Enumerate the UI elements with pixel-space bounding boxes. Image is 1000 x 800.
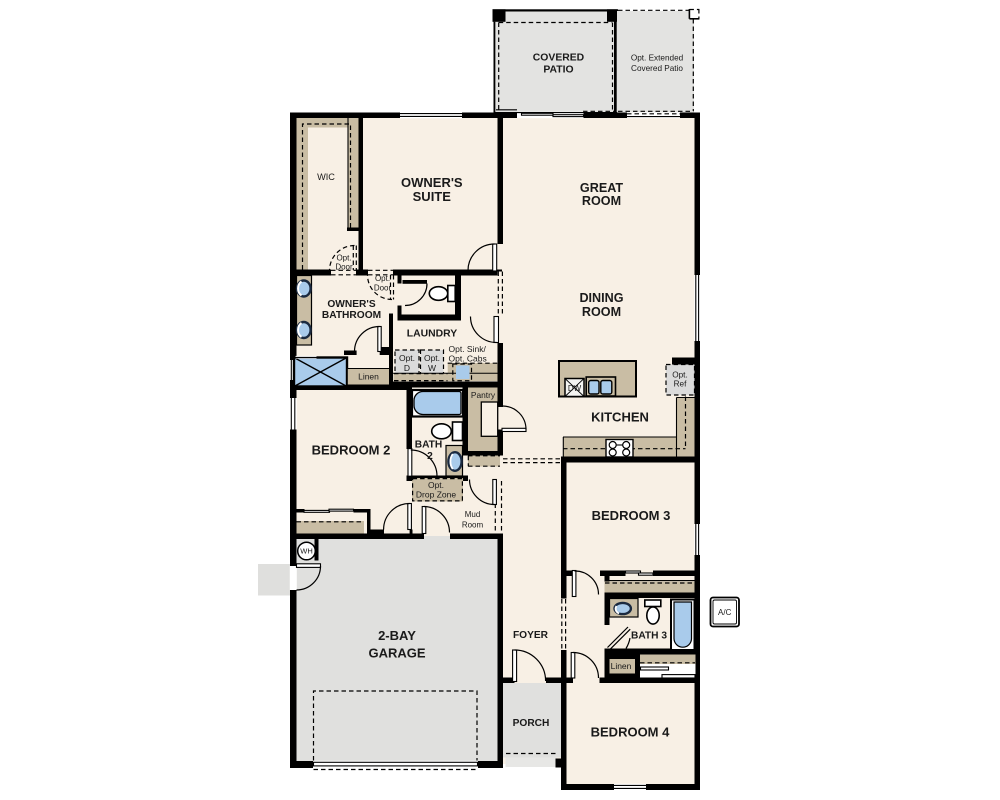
svg-text:2: 2	[427, 451, 433, 462]
svg-text:ROOM: ROOM	[582, 194, 621, 208]
svg-text:COVERED: COVERED	[533, 53, 585, 64]
svg-text:BATH: BATH	[415, 440, 443, 451]
svg-text:Ref: Ref	[674, 380, 687, 389]
svg-text:Linen: Linen	[611, 661, 632, 671]
svg-text:BATHROOM: BATHROOM	[322, 310, 381, 321]
svg-text:Opt.: Opt.	[399, 353, 415, 363]
svg-text:W: W	[428, 363, 436, 373]
svg-text:Linen: Linen	[358, 372, 379, 382]
svg-text:BEDROOM 4: BEDROOM 4	[591, 725, 671, 740]
svg-text:Opt.: Opt.	[375, 274, 390, 283]
svg-text:Opt.: Opt.	[424, 353, 440, 363]
svg-text:BEDROOM 3: BEDROOM 3	[592, 508, 671, 523]
svg-text:ROOM: ROOM	[582, 305, 621, 319]
svg-text:SUITE: SUITE	[413, 189, 452, 204]
svg-text:Opt. Extended: Opt. Extended	[631, 54, 684, 63]
svg-text:Drop Zone: Drop Zone	[416, 490, 456, 500]
svg-text:PORCH: PORCH	[513, 718, 550, 729]
svg-text:LAUNDRY: LAUNDRY	[407, 329, 457, 340]
svg-text:OWNER'S: OWNER'S	[327, 299, 375, 310]
svg-text:BATH 3: BATH 3	[631, 631, 667, 642]
svg-text:Room: Room	[462, 521, 484, 530]
svg-text:A/C: A/C	[718, 608, 732, 617]
svg-text:BEDROOM 2: BEDROOM 2	[312, 443, 391, 458]
svg-text:WIC: WIC	[317, 172, 335, 182]
svg-text:Pantry: Pantry	[471, 390, 496, 400]
svg-text:2-BAY: 2-BAY	[378, 628, 416, 643]
svg-text:Opt.: Opt.	[428, 480, 444, 490]
svg-text:GREAT: GREAT	[580, 181, 623, 195]
svg-text:PATIO: PATIO	[543, 65, 573, 76]
svg-text:Opt.: Opt.	[336, 254, 351, 263]
svg-text:DW: DW	[568, 384, 582, 393]
svg-text:WH: WH	[300, 547, 313, 556]
svg-text:D: D	[404, 363, 410, 373]
svg-text:OWNER'S: OWNER'S	[401, 175, 463, 190]
svg-text:Door: Door	[335, 263, 353, 272]
svg-text:FOYER: FOYER	[513, 630, 549, 641]
svg-text:Door: Door	[374, 284, 392, 293]
svg-text:Covered Patio: Covered Patio	[631, 64, 683, 73]
svg-text:GARAGE: GARAGE	[368, 646, 425, 661]
svg-text:Opt. Sink/: Opt. Sink/	[449, 344, 487, 354]
svg-text:KITCHEN: KITCHEN	[591, 410, 649, 425]
svg-text:Opt. Cabs: Opt. Cabs	[449, 354, 487, 364]
svg-text:Opt.: Opt.	[672, 371, 687, 380]
svg-text:DINING: DINING	[579, 291, 623, 305]
svg-text:Mud: Mud	[465, 510, 481, 519]
